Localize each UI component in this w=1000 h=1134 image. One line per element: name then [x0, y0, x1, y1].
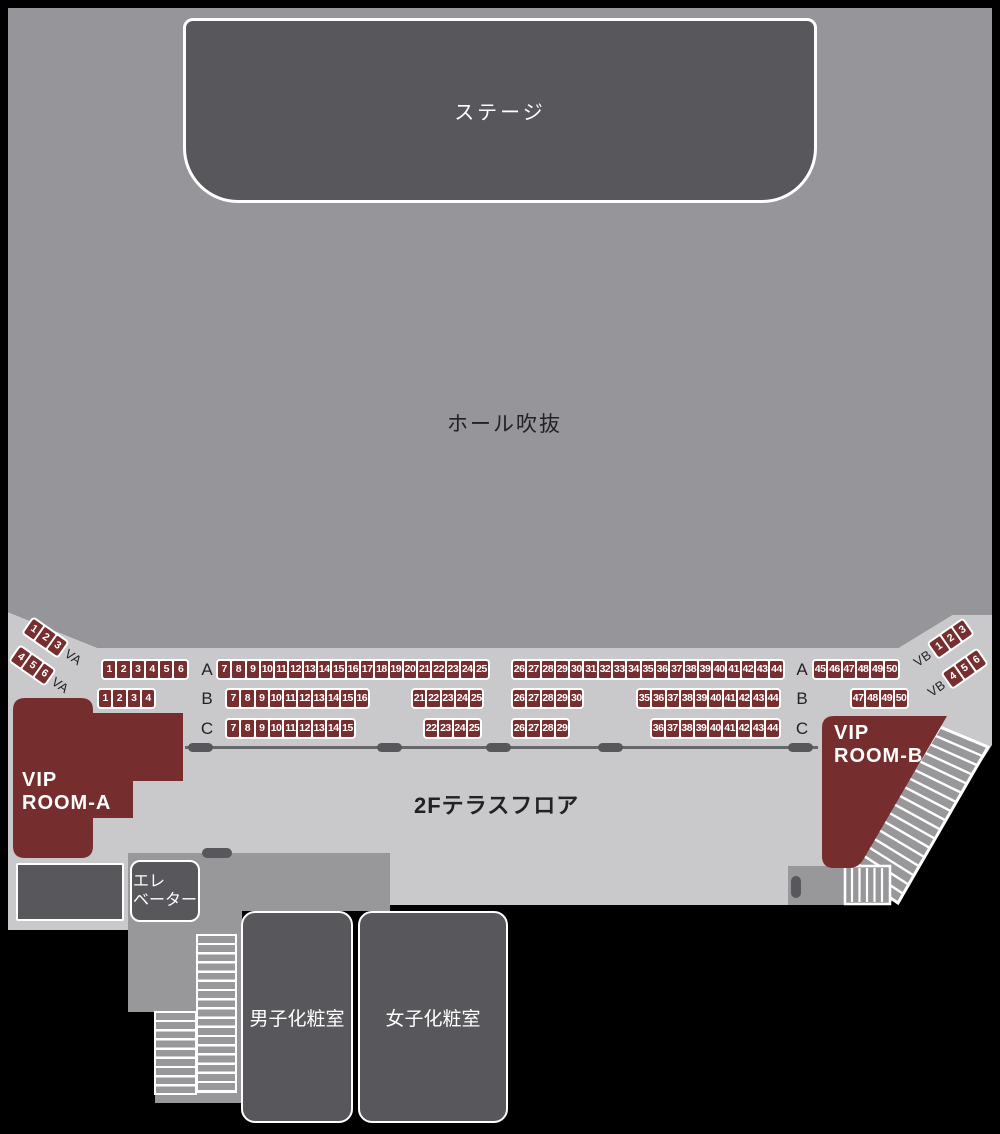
- seat-block-B-5: 47484950: [850, 688, 909, 709]
- seat-C8[interactable]: 8: [241, 720, 253, 737]
- seat-A18[interactable]: 18: [375, 661, 387, 678]
- seat-A14[interactable]: 14: [318, 661, 330, 678]
- seat-B8[interactable]: 8: [241, 690, 253, 707]
- seat-B3[interactable]: 3: [128, 690, 140, 707]
- seat-A25[interactable]: 25: [475, 661, 487, 678]
- seat-C42[interactable]: 42: [738, 720, 750, 737]
- stairs-left: [154, 1011, 197, 1095]
- seat-C40[interactable]: 40: [709, 720, 721, 737]
- seat-B24[interactable]: 24: [456, 690, 468, 707]
- stairs-right: [196, 934, 237, 1093]
- seat-A17[interactable]: 17: [361, 661, 373, 678]
- seat-A15[interactable]: 15: [332, 661, 344, 678]
- seat-B48[interactable]: 48: [866, 690, 878, 707]
- seat-C24[interactable]: 24: [454, 720, 466, 737]
- seat-A10[interactable]: 10: [261, 661, 273, 678]
- floor-door-marker: [202, 848, 232, 858]
- seat-A27[interactable]: 27: [527, 661, 539, 678]
- seat-C12[interactable]: 12: [298, 720, 310, 737]
- seat-A44[interactable]: 44: [770, 661, 782, 678]
- seat-B23[interactable]: 23: [442, 690, 454, 707]
- seat-B36[interactable]: 36: [652, 690, 664, 707]
- seat-A32[interactable]: 32: [599, 661, 611, 678]
- seat-A22[interactable]: 22: [432, 661, 444, 678]
- seat-A50[interactable]: 50: [885, 661, 897, 678]
- seat-A47[interactable]: 47: [843, 661, 855, 678]
- seat-block-B-3: 2627282930: [511, 688, 584, 709]
- seat-A12[interactable]: 12: [289, 661, 301, 678]
- seat-B44[interactable]: 44: [767, 690, 779, 707]
- railing-door-marker: [788, 743, 813, 752]
- railing-door-marker: [598, 743, 623, 752]
- hall-void-label: ホール吹抜: [447, 408, 562, 438]
- seat-B21[interactable]: 21: [413, 690, 425, 707]
- seat-A35[interactable]: 35: [642, 661, 654, 678]
- seat-A11[interactable]: 11: [275, 661, 287, 678]
- mens-restroom: 男子化粧室: [241, 911, 353, 1123]
- seat-C15[interactable]: 15: [341, 720, 353, 737]
- vip-room-b-label: VIP ROOM-B: [834, 722, 923, 768]
- seat-B26[interactable]: 26: [513, 690, 525, 707]
- seat-A39[interactable]: 39: [699, 661, 711, 678]
- seat-B25[interactable]: 25: [470, 690, 482, 707]
- seat-C26[interactable]: 26: [513, 720, 525, 737]
- seat-B43[interactable]: 43: [752, 690, 764, 707]
- seat-B38[interactable]: 38: [681, 690, 693, 707]
- seat-C41[interactable]: 41: [723, 720, 735, 737]
- seat-block-A-3: 454647484950: [812, 659, 900, 680]
- seat-B10[interactable]: 10: [270, 690, 282, 707]
- seat-C43[interactable]: 43: [752, 720, 764, 737]
- seat-A20[interactable]: 20: [404, 661, 416, 678]
- seat-B4[interactable]: 4: [142, 690, 154, 707]
- seat-C9[interactable]: 9: [256, 720, 268, 737]
- seat-B30[interactable]: 30: [570, 690, 582, 707]
- seat-A33[interactable]: 33: [613, 661, 625, 678]
- seat-A29[interactable]: 29: [556, 661, 568, 678]
- seat-A31[interactable]: 31: [584, 661, 596, 678]
- stage: ステージ: [183, 18, 817, 203]
- floor-map: ステージ ホール吹抜 2Fテラスフロア VIP ROOM-A VIP ROOM-…: [0, 0, 1000, 1134]
- seat-A4[interactable]: 4: [146, 661, 158, 678]
- seat-B15[interactable]: 15: [341, 690, 353, 707]
- terrace-floor-label: 2Fテラスフロア: [414, 788, 579, 820]
- seat-A43[interactable]: 43: [756, 661, 768, 678]
- seat-C7[interactable]: 7: [227, 720, 239, 737]
- seat-A21[interactable]: 21: [418, 661, 430, 678]
- seat-B42[interactable]: 42: [738, 690, 750, 707]
- seat-block-C-3: 363738394041424344: [650, 718, 781, 739]
- seat-block-C-0: 789101112131415: [225, 718, 356, 739]
- seat-B41[interactable]: 41: [724, 690, 736, 707]
- seat-B39[interactable]: 39: [695, 690, 707, 707]
- seat-C14[interactable]: 14: [327, 720, 339, 737]
- seat-A8[interactable]: 8: [232, 661, 244, 678]
- seat-block-B-1: 78910111213141516: [225, 688, 370, 709]
- seat-A28[interactable]: 28: [542, 661, 554, 678]
- seat-A5[interactable]: 5: [160, 661, 172, 678]
- seat-B27[interactable]: 27: [527, 690, 539, 707]
- seat-B40[interactable]: 40: [709, 690, 721, 707]
- row-label-C: C: [195, 718, 219, 739]
- seat-C39[interactable]: 39: [695, 720, 707, 737]
- seat-B13[interactable]: 13: [313, 690, 325, 707]
- seat-A40[interactable]: 40: [713, 661, 725, 678]
- seat-A37[interactable]: 37: [670, 661, 682, 678]
- seat-block-B-0: 1234: [97, 688, 156, 709]
- seat-C29[interactable]: 29: [556, 720, 568, 737]
- seat-C37[interactable]: 37: [666, 720, 678, 737]
- seat-B35[interactable]: 35: [638, 690, 650, 707]
- seat-A36[interactable]: 36: [656, 661, 668, 678]
- storage-room: [16, 863, 124, 921]
- seat-A19[interactable]: 19: [390, 661, 402, 678]
- seat-A6[interactable]: 6: [174, 661, 186, 678]
- row-label-B: B: [195, 688, 219, 709]
- seat-C22[interactable]: 22: [425, 720, 437, 737]
- seat-B9[interactable]: 9: [256, 690, 268, 707]
- seat-B28[interactable]: 28: [542, 690, 554, 707]
- seat-C11[interactable]: 11: [284, 720, 296, 737]
- seat-C28[interactable]: 28: [542, 720, 554, 737]
- seat-C10[interactable]: 10: [270, 720, 282, 737]
- seat-A41[interactable]: 41: [727, 661, 739, 678]
- seat-A9[interactable]: 9: [247, 661, 259, 678]
- seat-A45[interactable]: 45: [814, 661, 826, 678]
- seat-A13[interactable]: 13: [304, 661, 316, 678]
- row-label-A: A: [790, 659, 814, 680]
- seat-C23[interactable]: 23: [439, 720, 451, 737]
- seat-A16[interactable]: 16: [347, 661, 359, 678]
- seat-C36[interactable]: 36: [652, 720, 664, 737]
- seat-B11[interactable]: 11: [284, 690, 296, 707]
- seat-block-B-4: 35363738394041424344: [636, 688, 781, 709]
- seat-A24[interactable]: 24: [461, 661, 473, 678]
- stage-label: ステージ: [454, 96, 546, 125]
- railing-door-marker: [486, 743, 511, 752]
- seat-A46[interactable]: 46: [828, 661, 840, 678]
- seat-B2[interactable]: 2: [113, 690, 125, 707]
- seat-A1[interactable]: 1: [103, 661, 115, 678]
- seat-B7[interactable]: 7: [227, 690, 239, 707]
- seat-A7[interactable]: 7: [218, 661, 230, 678]
- seat-A2[interactable]: 2: [117, 661, 129, 678]
- seat-block-C-1: 22232425: [423, 718, 482, 739]
- railing-door-marker: [188, 743, 213, 752]
- seat-C13[interactable]: 13: [313, 720, 325, 737]
- seat-C25[interactable]: 25: [468, 720, 480, 737]
- seat-A49[interactable]: 49: [871, 661, 883, 678]
- seat-B22[interactable]: 22: [427, 690, 439, 707]
- seat-A38[interactable]: 38: [685, 661, 697, 678]
- seat-A26[interactable]: 26: [513, 661, 525, 678]
- seat-block-B-2: 2122232425: [411, 688, 484, 709]
- seat-B14[interactable]: 14: [327, 690, 339, 707]
- seat-B12[interactable]: 12: [298, 690, 310, 707]
- row-label-C: C: [790, 718, 814, 739]
- seat-A23[interactable]: 23: [447, 661, 459, 678]
- seat-block-C-2: 26272829: [511, 718, 570, 739]
- seat-block-A-0: 123456: [101, 659, 189, 680]
- seat-block-A-1: 78910111213141516171819202122232425: [216, 659, 490, 680]
- seat-A30[interactable]: 30: [570, 661, 582, 678]
- elevator: エレ ベーター: [130, 860, 200, 922]
- seat-B49[interactable]: 49: [881, 690, 893, 707]
- vip-b-door-marker: [791, 876, 801, 898]
- seat-A34[interactable]: 34: [627, 661, 639, 678]
- seat-B16[interactable]: 16: [356, 690, 368, 707]
- seat-B47[interactable]: 47: [852, 690, 864, 707]
- seat-C44[interactable]: 44: [766, 720, 778, 737]
- seat-B29[interactable]: 29: [556, 690, 568, 707]
- womens-restroom: 女子化粧室: [358, 911, 508, 1123]
- vip-room-a-label: VIP ROOM-A: [22, 769, 111, 815]
- seat-C27[interactable]: 27: [527, 720, 539, 737]
- railing-door-marker: [377, 743, 402, 752]
- seat-B37[interactable]: 37: [667, 690, 679, 707]
- row-label-B: B: [790, 688, 814, 709]
- seat-A42[interactable]: 42: [742, 661, 754, 678]
- seat-A48[interactable]: 48: [857, 661, 869, 678]
- seat-block-A-2: 26272829303132333435363738394041424344: [511, 659, 785, 680]
- seat-B1[interactable]: 1: [99, 690, 111, 707]
- seat-A3[interactable]: 3: [132, 661, 144, 678]
- seat-B50[interactable]: 50: [895, 690, 907, 707]
- seat-C38[interactable]: 38: [681, 720, 693, 737]
